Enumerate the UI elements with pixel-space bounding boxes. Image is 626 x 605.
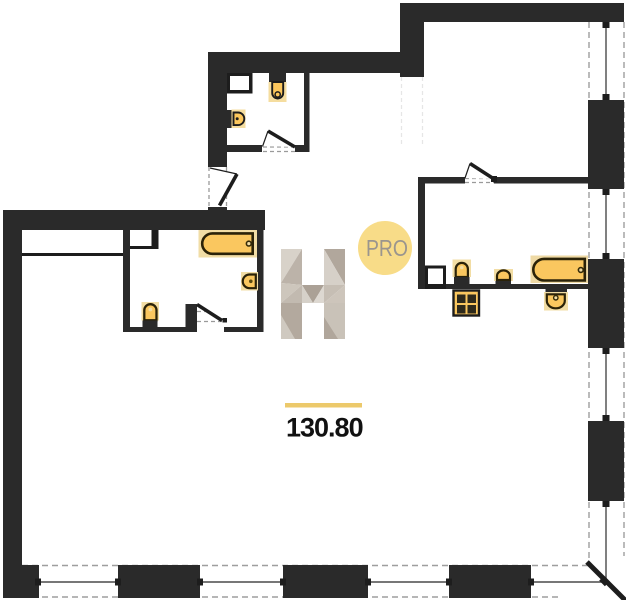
- svg-text:PRO: PRO: [366, 235, 408, 261]
- svg-text:130.80: 130.80: [286, 413, 363, 443]
